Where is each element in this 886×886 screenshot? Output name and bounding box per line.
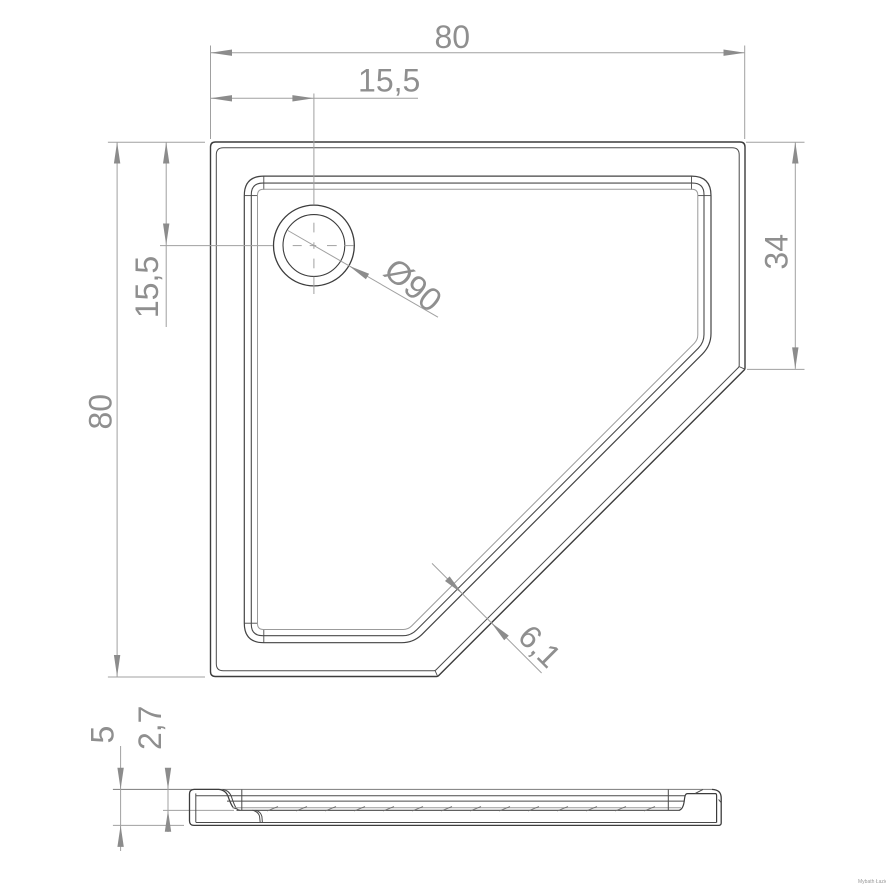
svg-text:34: 34 xyxy=(758,234,794,270)
svg-text:2,7: 2,7 xyxy=(132,706,168,750)
svg-text:15,5: 15,5 xyxy=(358,63,420,99)
svg-text:80: 80 xyxy=(82,394,118,430)
svg-text:15,5: 15,5 xyxy=(129,256,165,318)
svg-text:80: 80 xyxy=(435,19,471,55)
svg-text:5: 5 xyxy=(85,726,121,744)
svg-text:Mybath Łazienka i ...: Mybath Łazienka i ... xyxy=(858,879,886,885)
